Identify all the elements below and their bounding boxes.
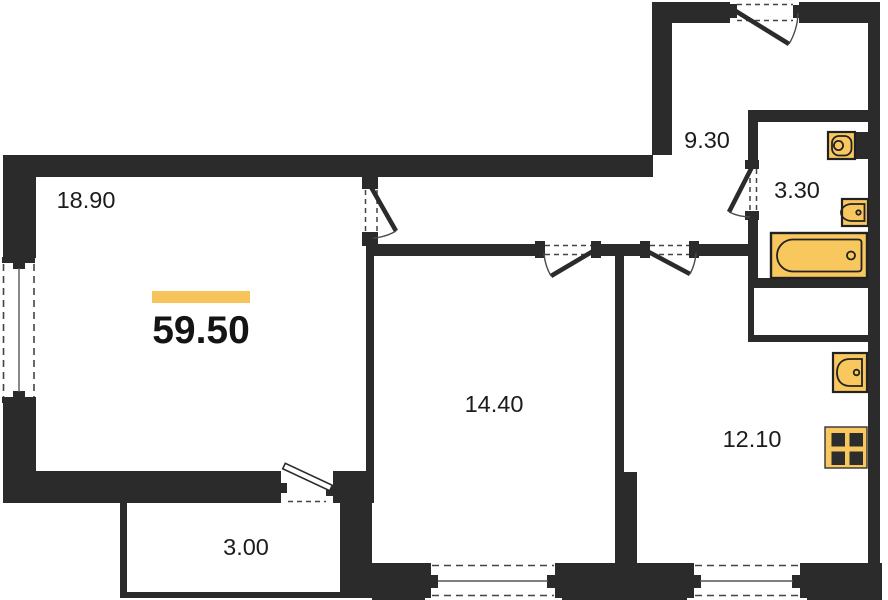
window-cap xyxy=(800,563,807,598)
stove-burner xyxy=(832,452,846,466)
jamb-bath-door-bottom xyxy=(745,211,759,220)
door-leaf xyxy=(371,187,396,231)
wall-balcony-bottom xyxy=(120,592,372,598)
door-leaf xyxy=(729,167,752,212)
door-leaf xyxy=(645,250,690,274)
entrance-door xyxy=(734,5,798,45)
wall-bottom-living xyxy=(3,471,281,503)
wall-bottom-a xyxy=(372,563,425,600)
stove-burner xyxy=(850,452,864,466)
kitchen-sink xyxy=(833,353,867,392)
wall-bottom-c xyxy=(807,563,882,600)
wall-top-entry-left xyxy=(652,2,730,23)
door-leaf-tilted xyxy=(283,463,333,490)
wall-bedroom-kitchen-divider-lower xyxy=(615,472,637,563)
bedroom-door xyxy=(544,246,595,277)
balcony-door xyxy=(279,463,334,501)
wall-top-main xyxy=(3,155,653,177)
window-bedroom xyxy=(424,563,562,598)
door-leaf xyxy=(734,10,789,44)
wall-bath-left-lower xyxy=(748,219,758,279)
room-label-living: 18.90 xyxy=(57,187,116,213)
room-label-hallway: 9.30 xyxy=(684,127,730,153)
total-area-accent-bar xyxy=(152,291,250,303)
window-anchor xyxy=(692,575,701,588)
wall-balcony-door-jamb xyxy=(333,471,374,503)
stove xyxy=(825,427,867,468)
door-swing-arc xyxy=(544,253,551,276)
window-living xyxy=(2,257,35,403)
window-anchor xyxy=(792,575,801,588)
wall-bedroom-kitchen-divider xyxy=(615,252,624,472)
jamb-living-door-bottom xyxy=(362,232,378,246)
walls xyxy=(3,2,882,600)
wall-bath-left-upper xyxy=(748,122,758,164)
wall-left-upper xyxy=(3,155,36,258)
stove-burner xyxy=(832,433,846,447)
window-anchor xyxy=(547,575,556,588)
bathtub xyxy=(771,233,867,278)
total-area-label: 59.50 xyxy=(152,309,250,352)
wall-top-entry-right xyxy=(799,2,880,23)
wall-bath-top xyxy=(748,110,868,122)
wall-balcony-left xyxy=(120,503,127,593)
room-label-bedroom: 14.40 xyxy=(465,391,524,417)
window-anchor xyxy=(429,575,438,588)
wall-living-divider xyxy=(366,246,374,472)
living-room-door xyxy=(366,187,397,238)
jamb-living-door-top xyxy=(362,176,378,189)
jamb-kitchen-door-right xyxy=(689,241,699,258)
door-anchor xyxy=(279,483,287,493)
stove-burner xyxy=(850,433,864,447)
floor-plan-canvas: 59.50 18.90 9.30 3.30 14.40 12.10 3.00 xyxy=(0,0,888,600)
kitchen-door xyxy=(645,246,696,275)
wall-duct-left xyxy=(748,288,754,336)
bathroom-door xyxy=(729,167,757,217)
window-anchor xyxy=(13,391,25,399)
window-cap xyxy=(555,563,562,598)
wall-corridor-a xyxy=(374,244,542,256)
wall-under-tub xyxy=(748,278,868,288)
room-label-kitchen: 12.10 xyxy=(723,426,782,452)
wall-duct-bottom xyxy=(748,335,880,342)
wall-balcony-right xyxy=(340,503,372,598)
wall-bottom-b xyxy=(562,563,687,600)
wall-corridor-c xyxy=(698,244,748,256)
wall-washer-side-block xyxy=(855,132,868,159)
window-kitchen xyxy=(687,563,807,598)
room-label-bathroom: 3.30 xyxy=(774,177,820,203)
room-label-balcony: 3.00 xyxy=(223,534,269,560)
jamb-bedroom-door-left xyxy=(535,241,545,258)
washing-machine xyxy=(828,132,855,159)
wall-right xyxy=(868,2,880,600)
washbasin xyxy=(841,199,868,226)
wall-hall-left xyxy=(652,2,672,155)
window-anchor xyxy=(13,261,25,269)
floor-plan: 59.50 18.90 9.30 3.30 14.40 12.10 3.00 xyxy=(0,0,888,600)
